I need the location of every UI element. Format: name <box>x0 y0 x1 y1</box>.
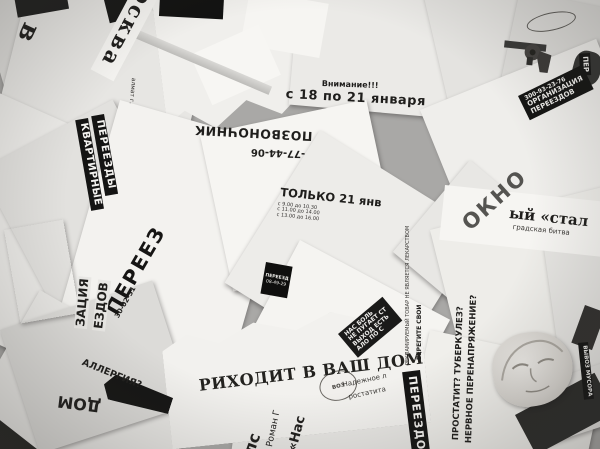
spine-phone: -77-44-06 <box>251 146 306 158</box>
almaty-label: алмат г. <box>127 77 136 104</box>
beregite-line: БЕРЕГИТЕ СВОИ <box>417 305 423 360</box>
ad-disclaimer: РЕКЛАМИРУЕМЫЙ ТОВАР НЕ ЯВЛЯЕТСЯ ЛЕКАРСТВ… <box>406 226 411 365</box>
newspaper-collage: воз ПЕРЕЕЗД 08-49-29 осква в алмат г. КВ… <box>0 0 600 449</box>
black-tab <box>159 0 224 19</box>
face-sketch-photo <box>488 327 578 411</box>
per-edge-strip: ПЕР <box>579 53 591 75</box>
revolver-photo <box>497 28 565 80</box>
mini-moving-ad: ПЕРЕЕЗД 08-49-29 <box>260 262 292 298</box>
